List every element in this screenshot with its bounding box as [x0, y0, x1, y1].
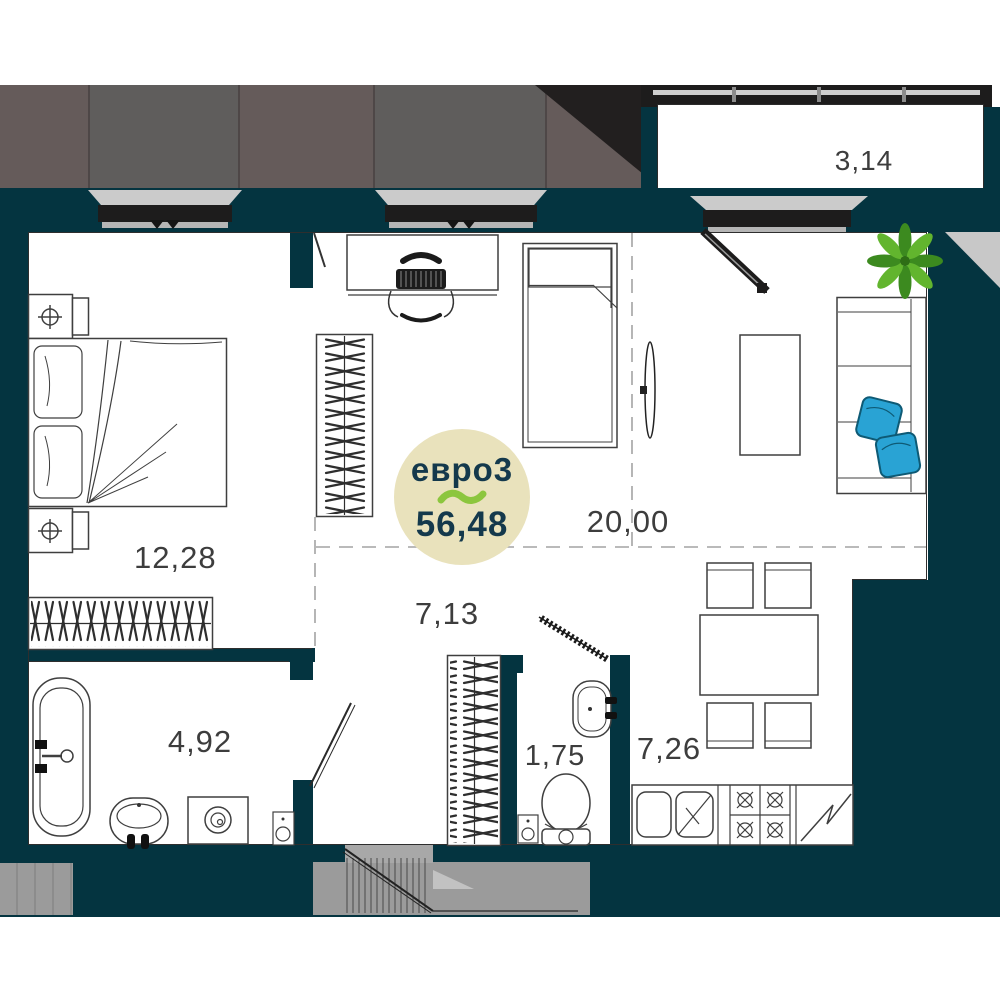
facade-panel [90, 85, 240, 188]
window-frame [385, 205, 537, 222]
wall-bathroom-right-lower [293, 780, 313, 845]
window-opening-marker [166, 220, 180, 229]
window-frame [98, 205, 232, 222]
entry-door-opening [345, 845, 433, 863]
window-inner-sill [389, 222, 533, 228]
plan-type-label: евро3 [411, 453, 513, 486]
window-opening-marker [446, 220, 460, 229]
window-opening-marker [150, 220, 164, 229]
plan-badge: евро3 56,48 [394, 429, 530, 565]
floor-plan: 3,14 12,28 20,00 7,13 4,92 1,75 7,26 евр… [0, 0, 1000, 1000]
room-label-kitchen: 7,26 [636, 731, 702, 767]
glazing-mullion [902, 87, 906, 102]
room-label-bedroom: 12,28 [134, 540, 214, 576]
window-unit [375, 190, 547, 232]
wall-wc-right [610, 655, 630, 845]
tilde-icon [437, 489, 487, 505]
wall-bedroom-stub [290, 232, 313, 288]
room-label-wc: 1,75 [524, 740, 586, 773]
wall-bathroom-right-upper [290, 648, 313, 680]
window-sill [88, 190, 242, 206]
plan-total-area: 56,48 [416, 507, 509, 542]
window-inner-sill [708, 227, 846, 232]
wall-right [928, 232, 1000, 917]
glazing-mullion [817, 87, 821, 102]
balcony-window-unit [690, 196, 868, 236]
room-label-living-room: 20,00 [583, 504, 673, 540]
room-label-bathroom: 4,92 [165, 724, 235, 760]
window-inner-sill [102, 222, 228, 228]
balcony-side-wall-left [641, 107, 657, 194]
wall-bathroom-top [0, 648, 315, 662]
wall-wc-left [500, 655, 517, 845]
wall-kitchen-notch [853, 580, 928, 845]
window-unit [88, 190, 242, 232]
facade-panel [375, 85, 547, 188]
window-opening-marker [462, 220, 476, 229]
wall-left [0, 232, 28, 917]
facade-panel [240, 85, 375, 188]
room-label-balcony: 3,14 [833, 145, 895, 177]
wall-wc-left-step [500, 655, 523, 673]
balcony-floor [657, 104, 984, 194]
window-sill [375, 190, 547, 206]
room-label-hallway: 7,13 [412, 596, 482, 632]
glazing-mullion [732, 87, 736, 102]
window-frame [703, 210, 851, 227]
window-sill [690, 196, 868, 210]
corridor-strip-left [0, 863, 73, 915]
corridor-entry-area [313, 862, 590, 915]
facade-panel [0, 85, 90, 188]
balcony-side-wall-right [984, 107, 1000, 194]
